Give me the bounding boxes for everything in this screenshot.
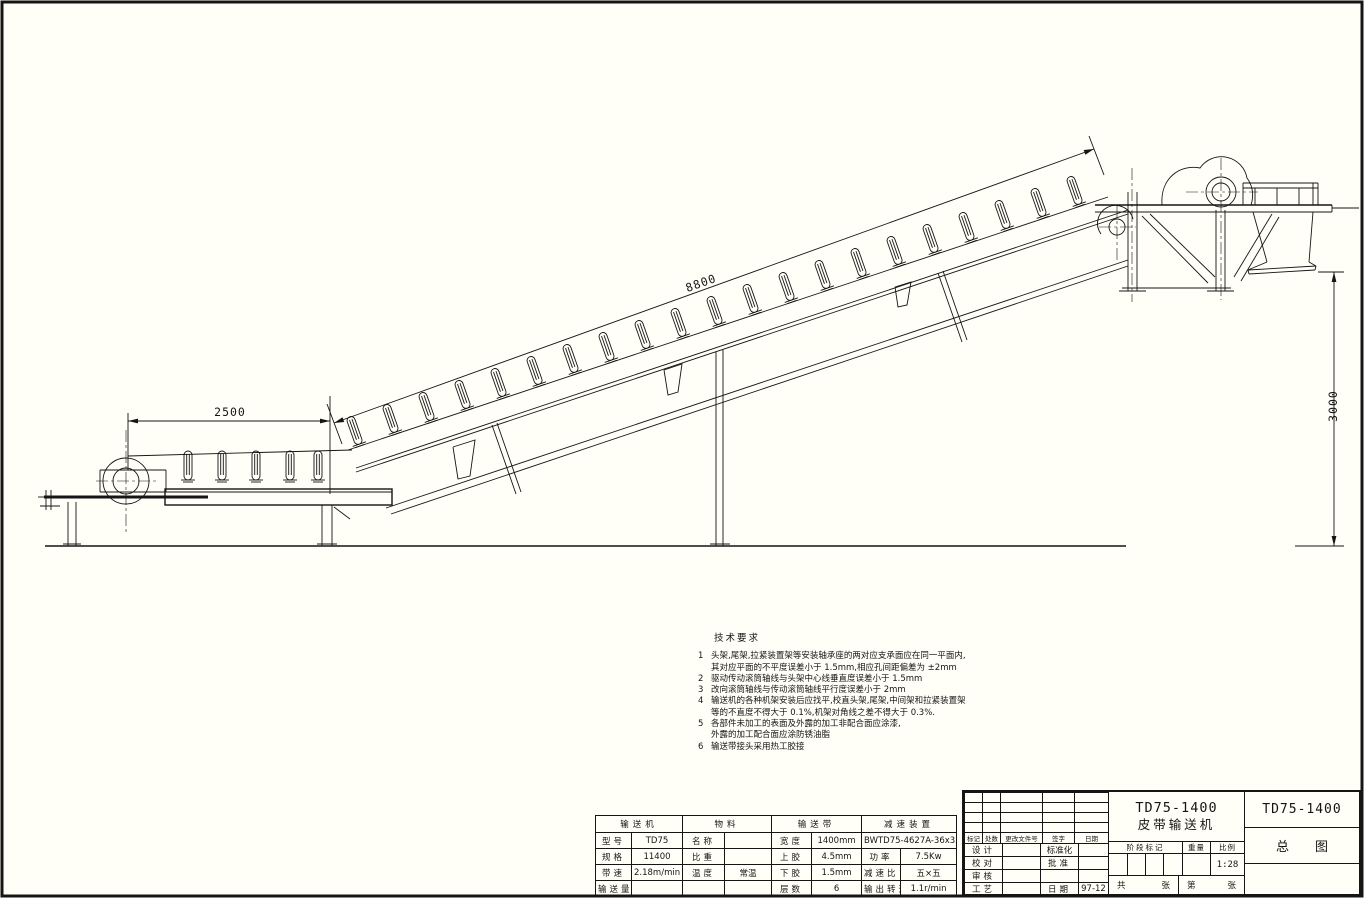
spec-cell: 带速 — [596, 865, 632, 881]
revision-header-row: 标记 处数 更改文件号 签字 日期 — [965, 833, 1109, 844]
spec-cell: 层数 — [772, 881, 812, 897]
spec-section: 减速装置 — [862, 816, 957, 833]
note-number: 2 — [698, 674, 711, 685]
signature-label: 审核 — [965, 870, 1003, 883]
stage-mark-label: 阶段标记 — [1108, 842, 1182, 854]
drive-pulley — [1162, 157, 1258, 300]
signature-label: 日期 — [1041, 883, 1079, 896]
discharge-chute — [1247, 212, 1319, 274]
stage-mark-cell — [1145, 854, 1163, 876]
product-title-cell: TD75-1400 皮带输送机 — [1108, 792, 1244, 842]
spec-cell: 减速比 — [862, 865, 901, 881]
spec-row: 型号 TD75 名称 宽度 1400mm BWTD75-4627A-36x35 — [596, 833, 957, 849]
spec-cell: 型号 — [596, 833, 632, 849]
note-number: 5 — [698, 719, 711, 742]
sheet-number-unit: 张 — [1227, 879, 1236, 891]
head-frame — [1095, 168, 1359, 302]
drawing-type-cell: 总图 — [1244, 828, 1359, 864]
note-text: 等的不直度不得大于 0.1%,机架对角线之差不得大于 0.3%. — [711, 708, 935, 718]
spec-cell: 温度 — [683, 865, 725, 881]
belt-line-incline — [348, 197, 1108, 450]
scale-value: 1:28 — [1210, 854, 1244, 876]
revision-header-cell: 处数 — [983, 833, 1001, 844]
note-item: 3 改向滚筒轴线与传动滚筒轴线平行度误差小于 2mm — [698, 685, 966, 696]
note-item: 4 输送机的各种机架安装后应找平,校直头架,尾架,中间架和拉紧装置架 等的不直度… — [698, 696, 966, 719]
spec-cell: BWTD75-4627A-36x35 — [862, 833, 957, 849]
revision-row — [965, 823, 1109, 833]
weight-label: 重量 — [1182, 842, 1210, 854]
note-text: 驱动传动滚筒轴线与头架中心线垂直度误差小于 1.5mm — [711, 674, 922, 684]
empty-cell — [1244, 864, 1359, 894]
spec-cell: 下胶 — [772, 865, 812, 881]
frame-joints-and-support — [453, 271, 967, 546]
spec-cell: 名称 — [683, 833, 725, 849]
spec-cell: 功率 — [862, 849, 901, 865]
spec-cell: 比重 — [683, 849, 725, 865]
note-item: 6 输送带接头采用热工胶接 — [698, 742, 966, 753]
dimension-label-2500: 2500 — [204, 405, 256, 419]
dimension-label-3000: 3000 — [1326, 375, 1340, 437]
spec-cell: 7.5Kw — [901, 849, 957, 865]
spec-cell: 1.5mm — [812, 865, 862, 881]
spec-cell — [683, 881, 725, 897]
spec-table: 输送机 物料 输送带 减速装置 型号 TD75 名称 宽度 1400mm BWT… — [595, 815, 957, 897]
spec-cell: 上胶 — [772, 849, 812, 865]
spec-cell: 输出转速 — [862, 881, 901, 897]
sheets-total-label: 共 — [1117, 879, 1126, 891]
spec-row: 带速 2.18m/min 温度 常温 下胶 1.5mm 减速比 五×五 — [596, 865, 957, 881]
revision-row — [965, 813, 1109, 823]
spec-cell: 4.5mm — [812, 849, 862, 865]
note-text: 改向滚筒轴线与传动滚筒轴线平行度误差小于 2mm — [711, 685, 906, 695]
idlers-horizontal — [181, 451, 325, 482]
signature-row: 工艺 日期 97-12 — [965, 883, 1109, 896]
spec-cell: 输送量 — [596, 881, 632, 897]
sheet-border — [2, 2, 1362, 896]
product-name: 皮带输送机 — [1138, 817, 1216, 834]
signature-label — [1041, 870, 1079, 883]
spec-cell: TD75 — [632, 833, 683, 849]
drawing-number-cell: TD75-1400 — [1244, 792, 1359, 828]
scale-label: 比例 — [1210, 842, 1244, 854]
signature-label: 设计 — [965, 844, 1003, 857]
drawing-sheet: 2500 8800 3000 技术要求 1 头架,尾架,拉紧装置架等安装轴承座的… — [0, 0, 1364, 898]
revision-header-cell: 日期 — [1075, 833, 1109, 844]
weight-value — [1182, 854, 1210, 876]
snub-pulley — [1098, 205, 1136, 262]
spec-section: 输送带 — [772, 816, 862, 833]
signature-value — [1079, 857, 1109, 870]
sheet-number-label: 第 — [1187, 879, 1196, 891]
spec-header-row: 输送机 物料 输送带 减速装置 — [596, 816, 957, 833]
incline-frame — [356, 210, 1128, 514]
sheets-total-cell: 共 张 — [1108, 876, 1178, 894]
note-item: 5 各部件未加工的表面及外露的加工非配合面应涂漆, 外露的加工配合面应涂防锈油脂 — [698, 719, 966, 742]
spec-cell — [725, 881, 772, 897]
note-number: 3 — [698, 685, 711, 696]
spec-cell — [725, 849, 772, 865]
note-number: 4 — [698, 696, 711, 719]
spec-cell: 1400mm — [812, 833, 862, 849]
sheet-number-cell: 第 张 — [1178, 876, 1244, 894]
note-text: 头架,尾架,拉紧装置架等安装轴承座的两对应支承面应在同一平面内, — [711, 651, 966, 661]
revision-row — [965, 793, 1109, 803]
signature-label: 校对 — [965, 857, 1003, 870]
spec-section: 输送机 — [596, 816, 683, 833]
note-text: 其对应平面的不平度误差小于 1.5mm,相应孔间距偏差为 ±2mm — [711, 663, 957, 673]
signature-label: 批准 — [1041, 857, 1079, 870]
spec-cell: 五×五 — [901, 865, 957, 881]
stage-mark-cell — [1163, 854, 1182, 876]
note-item: 2 驱动传动滚筒轴线与头架中心线垂直度误差小于 1.5mm — [698, 674, 966, 685]
stage-mark-cell — [1127, 854, 1145, 876]
revision-grid: 标记 处数 更改文件号 签字 日期 — [964, 792, 1109, 844]
signature-value — [1079, 844, 1109, 857]
signature-row: 设计 标准化 — [965, 844, 1109, 857]
spec-cell: 1.1r/min — [901, 881, 957, 897]
conveyor-line-drawing — [0, 0, 1364, 898]
spec-row: 规格 11400 比重 上胶 4.5mm 功率 7.5Kw — [596, 849, 957, 865]
technical-notes: 技术要求 1 头架,尾架,拉紧装置架等安装轴承座的两对应支承面应在同一平面内, … — [698, 633, 966, 753]
revision-header-cell: 标记 — [965, 833, 983, 844]
note-text: 输送带接头采用热工胶接 — [711, 742, 805, 752]
note-number: 1 — [698, 651, 711, 674]
sheets-total-unit: 张 — [1161, 879, 1170, 891]
revision-header-cell: 更改文件号 — [1001, 833, 1043, 844]
note-item: 1 头架,尾架,拉紧装置架等安装轴承座的两对应支承面应在同一平面内, 其对应平面… — [698, 651, 966, 674]
signature-row: 审核 — [965, 870, 1109, 883]
spec-cell: 11400 — [632, 849, 683, 865]
head-platform-railing — [1243, 183, 1318, 205]
signature-grid: 设计 标准化 校对 批准 审核 工艺 日期 97-12 — [964, 843, 1109, 896]
note-text: 输送机的各种机架安装后应找平,校直头架,尾架,中间架和拉紧装置架 — [711, 696, 966, 706]
spec-cell: 宽度 — [772, 833, 812, 849]
note-text: 外露的加工配合面应涂防锈油脂 — [711, 730, 830, 740]
title-block: 标记 处数 更改文件号 签字 日期 设计 标准化 校对 批准 审核 — [962, 790, 1361, 896]
spec-section: 物料 — [683, 816, 772, 833]
signature-row: 校对 批准 — [965, 857, 1109, 870]
signature-value: 97-12 — [1079, 883, 1109, 896]
revision-header-cell: 签字 — [1043, 833, 1075, 844]
spec-cell — [725, 833, 772, 849]
note-number: 6 — [698, 742, 711, 753]
signature-value — [1079, 870, 1109, 883]
spec-cell: 常温 — [725, 865, 772, 881]
spec-cell: 规格 — [596, 849, 632, 865]
signature-label: 标准化 — [1041, 844, 1079, 857]
technical-notes-title: 技术要求 — [714, 633, 966, 644]
stage-mark-cell — [1108, 854, 1127, 876]
revision-row — [965, 803, 1109, 813]
spec-row: 输送量 层数 6 输出转速 1.1r/min — [596, 881, 957, 897]
note-text: 各部件未加工的表面及外露的加工非配合面应涂漆, — [711, 719, 901, 729]
spec-cell — [632, 881, 683, 897]
spec-cell: 6 — [812, 881, 862, 897]
spec-cell: 2.18m/min — [632, 865, 683, 881]
tail-pulley — [96, 430, 156, 532]
signature-label: 工艺 — [965, 883, 1003, 896]
product-model: TD75-1400 — [1135, 799, 1217, 817]
